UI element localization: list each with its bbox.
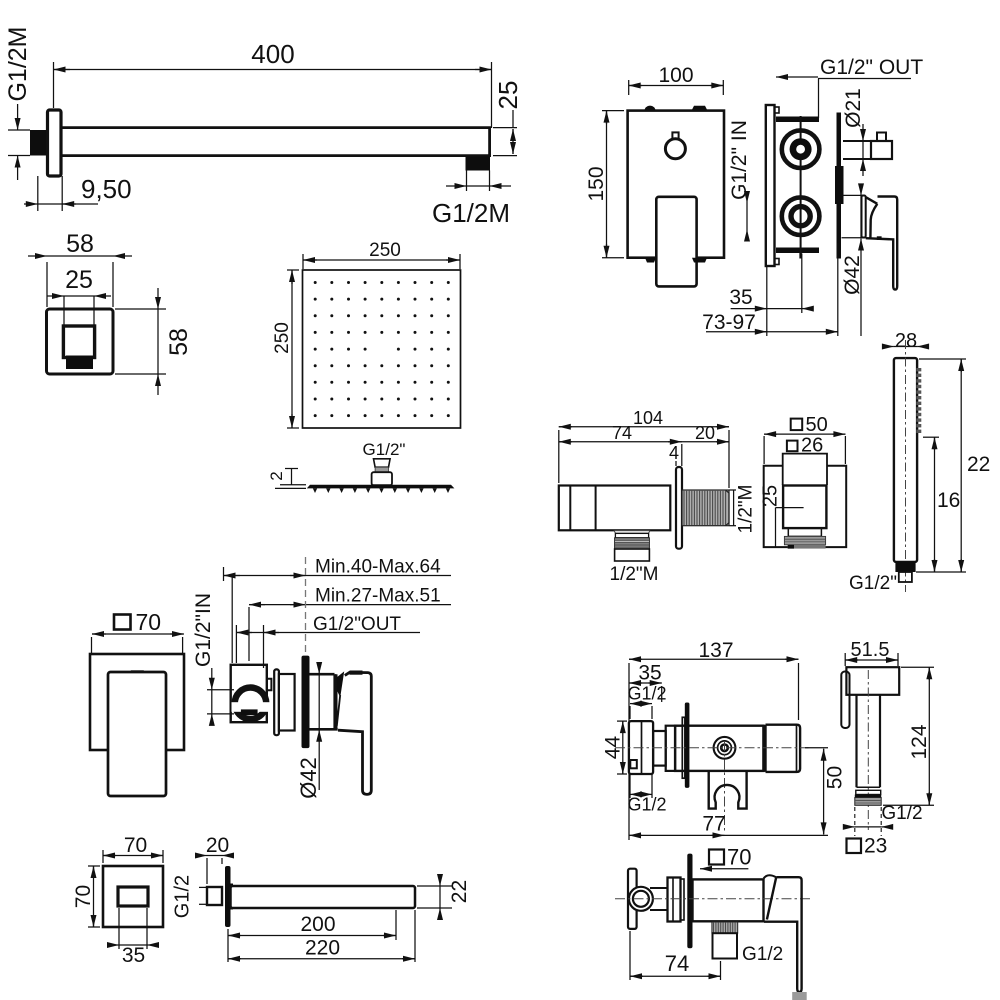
svg-text:G1/2": G1/2" [849,573,897,594]
svg-text:1/2"M: 1/2"M [610,564,659,585]
svg-text:35: 35 [638,662,661,685]
svg-text:22: 22 [967,453,990,476]
svg-text:G1/2: G1/2 [742,944,783,965]
svg-text:220: 220 [305,937,340,960]
svg-text:G1/2M: G1/2M [4,26,32,101]
svg-text:150: 150 [585,166,608,201]
svg-text:20: 20 [695,423,715,443]
svg-text:Ø21: Ø21 [842,88,865,128]
svg-text:25: 25 [760,485,782,507]
svg-text:G1/2": G1/2" [363,440,406,459]
svg-text:70: 70 [72,885,95,908]
svg-text:G1/2: G1/2 [881,803,922,824]
svg-text:G1/2" IN: G1/2" IN [728,120,751,200]
svg-text:G1/2" OUT: G1/2" OUT [820,56,923,79]
svg-text:70: 70 [136,609,162,635]
svg-text:58: 58 [66,230,94,258]
svg-text:2: 2 [267,471,286,480]
svg-text:25: 25 [493,81,523,110]
svg-text:G1/2M: G1/2M [432,198,510,228]
svg-text:74: 74 [665,951,689,976]
svg-text:G1/2"OUT: G1/2"OUT [313,614,401,635]
svg-text:58: 58 [165,328,193,356]
svg-text:G1/2: G1/2 [627,684,666,704]
svg-text:G1/2: G1/2 [627,795,666,815]
svg-text:Ø42: Ø42 [841,255,864,295]
svg-text:250: 250 [272,322,293,354]
svg-text:35: 35 [122,944,145,967]
svg-text:20: 20 [206,834,229,857]
svg-text:Min.27-Max.51: Min.27-Max.51 [315,586,441,607]
svg-text:23: 23 [864,835,887,858]
svg-text:100: 100 [658,64,693,87]
svg-text:50: 50 [806,414,828,436]
svg-text:G1/2"IN: G1/2"IN [192,593,215,667]
svg-text:25: 25 [65,266,93,294]
svg-text:70: 70 [727,845,751,870]
svg-text:22: 22 [448,880,471,903]
svg-text:124: 124 [908,724,931,759]
svg-text:74: 74 [612,423,632,443]
svg-text:104: 104 [633,408,663,428]
svg-text:250: 250 [369,240,401,261]
svg-text:50: 50 [824,766,847,789]
svg-text:77: 77 [702,813,725,836]
svg-text:G1/2: G1/2 [172,875,194,918]
svg-text:400: 400 [251,39,294,69]
svg-text:35: 35 [729,286,752,309]
svg-text:Ø42: Ø42 [296,757,321,799]
svg-text:70: 70 [124,834,147,857]
svg-text:1/2"M: 1/2"M [736,485,757,534]
svg-text:16: 16 [937,489,960,512]
svg-text:4: 4 [669,443,679,463]
svg-text:73-97: 73-97 [702,311,756,334]
svg-text:200: 200 [300,913,335,936]
svg-text:Min.40-Max.64: Min.40-Max.64 [315,557,441,578]
svg-text:137: 137 [698,639,733,662]
svg-text:9,50: 9,50 [81,174,132,204]
svg-text:51.5: 51.5 [851,639,890,661]
